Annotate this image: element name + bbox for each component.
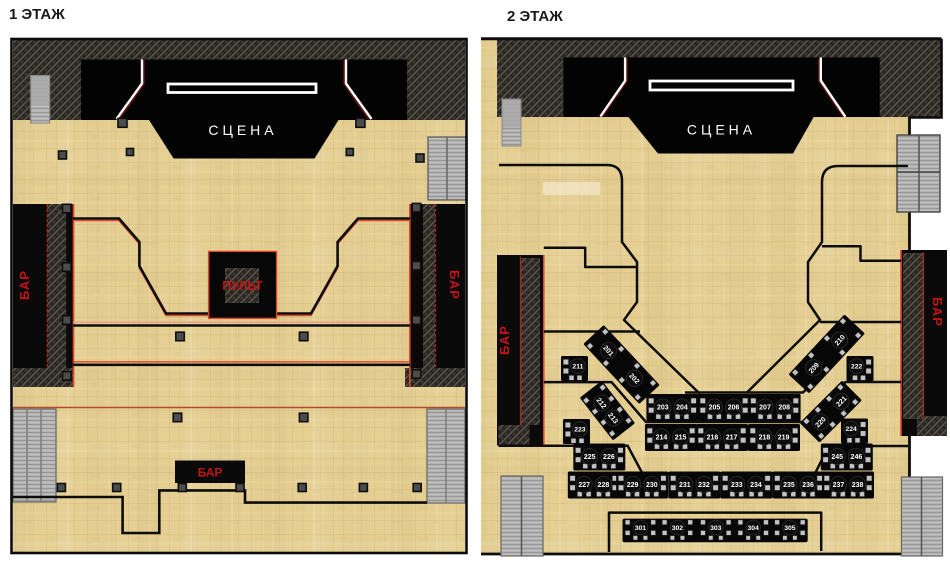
svg-text:224: 224 [845,426,857,433]
svg-text:303: 303 [710,525,722,532]
svg-text:245: 245 [831,454,843,461]
svg-text:233: 233 [731,482,743,489]
svg-text:218: 218 [759,435,771,442]
svg-text:208: 208 [778,405,790,412]
svg-text:203: 203 [657,405,669,412]
svg-text:ПУЛЬТ: ПУЛЬТ [222,279,263,293]
svg-text:228: 228 [598,482,610,489]
svg-text:211: 211 [572,364,583,371]
svg-text:230: 230 [646,482,658,489]
svg-text:229: 229 [627,482,639,489]
svg-text:205: 205 [709,405,721,412]
svg-text:204: 204 [676,405,688,412]
svg-text:302: 302 [672,525,684,532]
svg-text:БАР: БАР [198,466,223,480]
svg-text:232: 232 [698,482,710,489]
svg-text:215: 215 [675,435,687,442]
svg-text:БАР: БАР [447,270,462,300]
svg-text:238: 238 [852,482,864,489]
svg-text:227: 227 [578,482,590,489]
svg-text:222: 222 [851,364,863,371]
svg-text:2 ЭТАЖ: 2 ЭТАЖ [507,8,563,25]
svg-text:225: 225 [584,454,596,461]
svg-text:216: 216 [707,435,719,442]
svg-text:БАР: БАР [497,325,512,355]
svg-text:236: 236 [802,482,814,489]
svg-text:БАР: БАР [17,270,32,300]
svg-text:235: 235 [783,482,795,489]
svg-text:226: 226 [603,454,615,461]
svg-text:СЦЕНА: СЦЕНА [208,122,277,138]
svg-text:234: 234 [750,482,762,489]
svg-text:231: 231 [679,482,691,489]
svg-text:237: 237 [833,482,845,489]
svg-text:223: 223 [574,427,586,434]
svg-text:1 ЭТАЖ: 1 ЭТАЖ [9,6,65,23]
svg-text:БАР: БАР [930,297,945,327]
svg-text:СЦЕНА: СЦЕНА [687,122,756,138]
svg-text:206: 206 [728,405,740,412]
svg-text:219: 219 [778,435,790,442]
svg-text:304: 304 [748,525,760,532]
svg-text:214: 214 [656,435,668,442]
svg-text:207: 207 [759,405,771,412]
svg-text:246: 246 [851,454,863,461]
svg-text:301: 301 [635,525,647,532]
svg-text:217: 217 [726,435,738,442]
svg-text:305: 305 [784,525,796,532]
